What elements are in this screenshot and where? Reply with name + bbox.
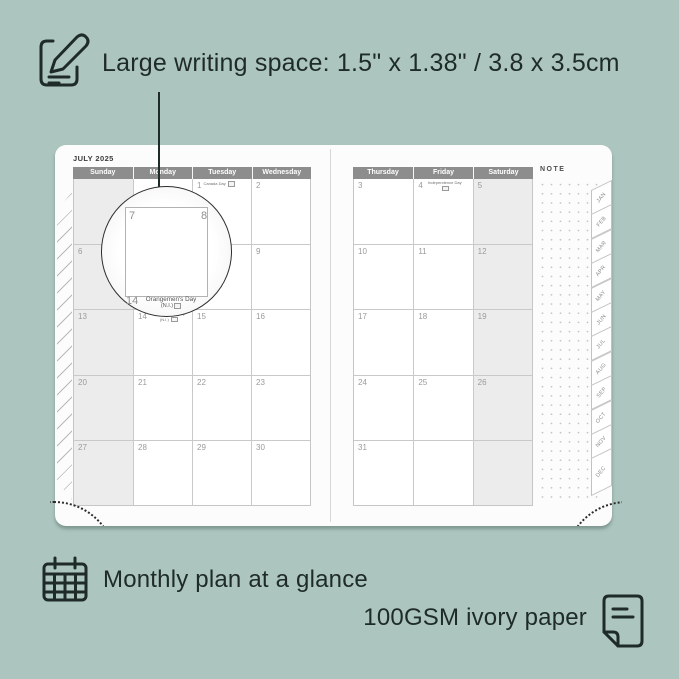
calendar-cell <box>413 440 472 505</box>
month-title: JULY 2025 <box>73 154 114 163</box>
day-header: Friday <box>413 167 473 179</box>
calendar-cell: 19 <box>473 309 532 374</box>
flag-icon <box>442 186 449 192</box>
magnified-writing-cell <box>125 207 208 297</box>
calendar-cell: 2 <box>251 179 310 244</box>
day-header: Tuesday <box>192 167 252 179</box>
calendar-grid-icon <box>40 554 90 604</box>
month-tab-label: NOV <box>595 435 608 449</box>
day-header: Thursday <box>353 167 413 179</box>
binding-hatch-decoration <box>57 192 72 500</box>
calendar-cell: 28 <box>133 440 192 505</box>
calendar-cell: 11 <box>413 244 472 309</box>
date-number: 4 <box>418 181 422 190</box>
calendar-cell: 31 <box>354 440 413 505</box>
month-tab-label: FEB <box>595 216 607 229</box>
date-number: 11 <box>418 247 426 256</box>
date-number: 31 <box>358 443 367 452</box>
magnified-date-14: 14 <box>126 295 138 307</box>
date-number: 5 <box>478 181 482 190</box>
month-tab-index: JANFEBMARAPRMAYJUNJULAUGSEPOCTNOVDEC <box>591 186 613 491</box>
month-tab-label: APR <box>595 264 607 277</box>
month-tab-label: JUN <box>595 313 607 326</box>
bottom-right-annotation-text: 100GSM ivory paper <box>363 604 587 632</box>
note-dot-grid <box>538 180 598 502</box>
month-tab-label: MAR <box>595 240 608 254</box>
spine-crease <box>330 149 331 522</box>
calendar-cell: 23 <box>251 375 310 440</box>
calendar-cell: 14Orangemen's Day (N.I.) <box>133 309 192 374</box>
date-number: 30 <box>256 443 265 452</box>
day-header: Saturday <box>473 167 533 179</box>
date-number: 18 <box>418 312 427 321</box>
flag-icon <box>171 317 178 323</box>
leader-line <box>158 92 160 189</box>
date-number: 16 <box>256 312 265 321</box>
calendar-cell: 18 <box>413 309 472 374</box>
day-header: Wednesday <box>252 167 312 179</box>
calendar-cell: 3 <box>354 179 413 244</box>
page-curl-right <box>552 496 622 526</box>
month-tab-label: OCT <box>595 410 608 423</box>
bottom-left-annotation-text: Monthly plan at a glance <box>103 566 368 594</box>
calendar-cell: 13 <box>74 309 133 374</box>
magnified-date-7: 7 <box>129 210 135 222</box>
calendar-cell: 10 <box>354 244 413 309</box>
month-tab-label: AUG <box>595 362 608 376</box>
top-annotation-text: Large writing space: 1.5" x 1.38" / 3.8 … <box>102 49 620 78</box>
calendar-cell: 9 <box>251 244 310 309</box>
calendar-cell: 22 <box>192 375 251 440</box>
flag-icon <box>228 181 235 187</box>
calendar-cell: 25 <box>413 375 472 440</box>
date-number: 29 <box>197 443 206 452</box>
calendar-cell: 29 <box>192 440 251 505</box>
calendar-right-page: ThursdayFridaySaturday34Independence Day… <box>353 167 533 506</box>
calendar-cell: 26 <box>473 375 532 440</box>
magnifier-circle: 7 8 14 Orangemen's Day (N.I.) <box>101 186 232 317</box>
date-number: 28 <box>138 443 147 452</box>
paper-sheet-icon <box>596 592 650 650</box>
date-number: 1 <box>197 181 201 190</box>
month-tab-label: MAY <box>595 289 608 302</box>
calendar-cell: 4Independence Day <box>413 179 472 244</box>
calendar-cell: 24 <box>354 375 413 440</box>
date-number: 2 <box>256 181 260 190</box>
date-number: 21 <box>138 378 147 387</box>
date-number: 26 <box>478 378 487 387</box>
date-number: 12 <box>478 247 487 256</box>
date-number: 20 <box>78 378 87 387</box>
calendar-cell: 16 <box>251 309 310 374</box>
calendar-cell: 20 <box>74 375 133 440</box>
month-tab-label: DEC <box>595 466 608 479</box>
date-number: 25 <box>418 378 427 387</box>
calendar-cell: 30 <box>251 440 310 505</box>
note-column-label: NOTE <box>540 166 565 173</box>
page-curl-left <box>50 496 120 526</box>
month-tab-dec: DEC <box>591 448 612 496</box>
month-tab-label: JAN <box>596 191 608 204</box>
date-number: 17 <box>358 312 367 321</box>
date-number: 3 <box>358 181 362 190</box>
month-tab-label: JUL <box>596 338 607 350</box>
calendar-cell: 15 <box>192 309 251 374</box>
day-header: Monday <box>133 167 193 179</box>
month-tab-label: SEP <box>595 386 607 399</box>
date-number: 27 <box>78 443 87 452</box>
date-number: 24 <box>358 378 367 387</box>
flag-icon <box>174 303 181 309</box>
date-number: 19 <box>478 312 487 321</box>
date-number: 9 <box>256 247 260 256</box>
calendar-cell: 17 <box>354 309 413 374</box>
date-number: 10 <box>358 247 367 256</box>
date-number: 6 <box>78 247 82 256</box>
magnified-holiday-text: Orangemen's Day (N.I.) <box>140 296 202 309</box>
calendar-cell <box>473 440 532 505</box>
date-number: 22 <box>197 378 206 387</box>
date-number: 15 <box>197 312 206 321</box>
calendar-cell: 5 <box>473 179 532 244</box>
calendar-cell: 12 <box>473 244 532 309</box>
holiday-label: Canada Day <box>203 181 234 187</box>
magnified-date-8: 8 <box>201 210 207 222</box>
calendar-cell: 21 <box>133 375 192 440</box>
holiday-label: Independence Day <box>425 181 465 191</box>
note-pencil-icon <box>37 32 91 90</box>
date-number: 13 <box>78 312 87 321</box>
day-header: Sunday <box>73 167 133 179</box>
date-number: 23 <box>256 378 265 387</box>
